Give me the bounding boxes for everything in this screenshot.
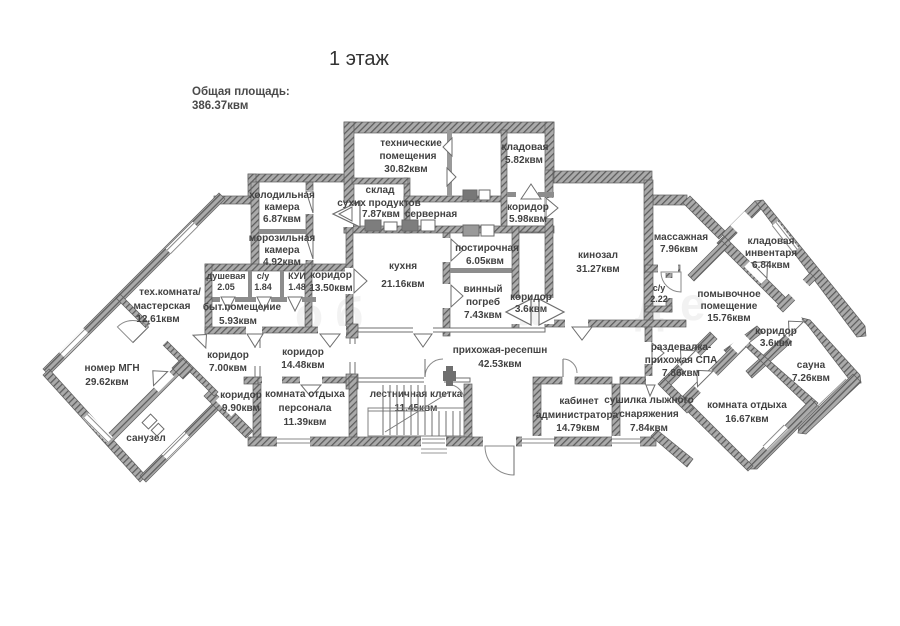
svg-text:кабинет: кабинет xyxy=(559,395,598,407)
svg-text:5.82квм: 5.82квм xyxy=(505,155,543,166)
svg-text:сауна: сауна xyxy=(797,360,826,371)
svg-text:4.92квм: 4.92квм xyxy=(263,257,301,268)
svg-text:2.05: 2.05 xyxy=(217,282,235,292)
svg-text:29.62квм: 29.62квм xyxy=(85,377,128,388)
svg-text:снаряжения: снаряжения xyxy=(619,409,679,420)
svg-text:3.6квм: 3.6квм xyxy=(760,338,792,349)
svg-text:прихожая СПА: прихожая СПА xyxy=(645,355,718,366)
svg-text:камера: камера xyxy=(264,202,300,213)
svg-text:16.67квм: 16.67квм xyxy=(725,414,768,425)
svg-text:сушилка лыжного: сушилка лыжного xyxy=(604,395,694,406)
svg-text:кухня: кухня xyxy=(389,261,417,272)
svg-text:1.84: 1.84 xyxy=(254,282,272,292)
svg-text:7.84квм: 7.84квм xyxy=(630,423,668,434)
svg-text:постирочная: постирочная xyxy=(455,243,519,254)
svg-text:номер МГН: номер МГН xyxy=(84,363,139,374)
svg-text:санузел: санузел xyxy=(126,433,165,444)
svg-text:погреб: погреб xyxy=(466,296,500,308)
svg-text:холодильная: холодильная xyxy=(249,190,315,201)
svg-text:2.22: 2.22 xyxy=(650,294,668,304)
svg-text:мастерская: мастерская xyxy=(134,301,191,312)
svg-text:быт.помещение: быт.помещение xyxy=(203,301,282,313)
svg-text:7.86квм: 7.86квм xyxy=(662,368,700,379)
svg-text:31.27квм: 31.27квм xyxy=(576,264,619,275)
svg-text:30.82квм: 30.82квм xyxy=(384,164,427,175)
svg-text:14.79квм: 14.79квм xyxy=(556,423,599,434)
svg-text:склад: склад xyxy=(366,185,396,196)
svg-text:42.53квм: 42.53квм xyxy=(478,359,521,370)
svg-text:инвентаря: инвентаря xyxy=(745,248,797,259)
svg-text:кладовая: кладовая xyxy=(748,236,795,247)
svg-text:персонала: персонала xyxy=(279,403,332,414)
svg-text:14.48квм: 14.48квм xyxy=(281,360,324,371)
svg-text:5.93квм: 5.93квм xyxy=(219,316,257,327)
svg-text:администратора: администратора xyxy=(536,410,619,421)
svg-text:Общая площадь:: Общая площадь: xyxy=(192,86,290,98)
svg-text:13.50квм: 13.50квм xyxy=(309,283,352,294)
svg-text:массажная: массажная xyxy=(654,232,708,243)
svg-text:кладовая: кладовая xyxy=(502,142,549,153)
svg-text:21.16квм: 21.16квм xyxy=(381,279,424,290)
svg-text:коридор: коридор xyxy=(207,350,249,361)
svg-text:386.37квм: 386.37квм xyxy=(192,100,248,112)
svg-text:6.84квм: 6.84квм xyxy=(752,260,790,271)
svg-text:9.90квм: 9.90квм xyxy=(222,403,260,414)
svg-text:прихожая-ресепшн: прихожая-ресепшн xyxy=(453,345,548,356)
svg-text:морозильная: морозильная xyxy=(249,233,316,244)
svg-text:3.6квм: 3.6квм xyxy=(515,304,547,315)
svg-text:помывочное: помывочное xyxy=(697,289,761,300)
svg-text:камера: камера xyxy=(264,245,300,256)
svg-text:душевая: душевая xyxy=(206,271,245,281)
svg-text:винный: винный xyxy=(463,284,502,295)
svg-text:КУИ: КУИ xyxy=(288,271,306,281)
svg-text:тех.комната/: тех.комната/ xyxy=(139,287,201,298)
svg-text:7.96квм: 7.96квм xyxy=(660,244,698,255)
svg-text:6.87квм: 6.87квм xyxy=(263,214,301,225)
svg-text:7.26квм: 7.26квм xyxy=(792,373,830,384)
svg-text:коридор: коридор xyxy=(507,202,549,213)
svg-text:1.48: 1.48 xyxy=(288,282,306,292)
svg-text:комната отдыха: комната отдыха xyxy=(265,389,345,400)
svg-text:7.43квм: 7.43квм xyxy=(464,310,502,321)
svg-text:раздевалка-: раздевалка- xyxy=(651,342,712,353)
svg-text:комната отдыха: комната отдыха xyxy=(707,400,787,411)
svg-text:15.76квм: 15.76квм xyxy=(707,313,750,324)
svg-text:коридор: коридор xyxy=(755,326,797,337)
svg-text:серверная: серверная xyxy=(405,209,458,220)
svg-text:коридор: коридор xyxy=(220,390,262,401)
svg-text:с/у: с/у xyxy=(653,283,666,293)
svg-text:7.87квм: 7.87квм xyxy=(362,209,400,220)
svg-text:сухих продуктов: сухих продуктов xyxy=(337,198,420,209)
svg-text:коридор: коридор xyxy=(510,292,552,303)
svg-text:12.61квм: 12.61квм xyxy=(136,314,179,325)
svg-text:5.98квм: 5.98квм xyxy=(509,214,547,225)
svg-text:коридор: коридор xyxy=(282,347,324,358)
svg-text:6.05квм: 6.05квм xyxy=(466,256,504,267)
svg-text:технические: технические xyxy=(380,138,442,149)
svg-text:кинозал: кинозал xyxy=(578,250,618,261)
svg-text:коридор: коридор xyxy=(310,270,352,281)
svg-text:лестничная клетка: лестничная клетка xyxy=(370,389,463,400)
svg-text:с/у: с/у xyxy=(257,271,270,281)
svg-text:1 этаж: 1 этаж xyxy=(329,48,390,70)
svg-text:11.39квм: 11.39квм xyxy=(284,417,327,428)
svg-text:помещения: помещения xyxy=(380,151,437,162)
svg-text:помещение: помещение xyxy=(701,301,758,312)
svg-text:7.00квм: 7.00квм xyxy=(209,363,247,374)
